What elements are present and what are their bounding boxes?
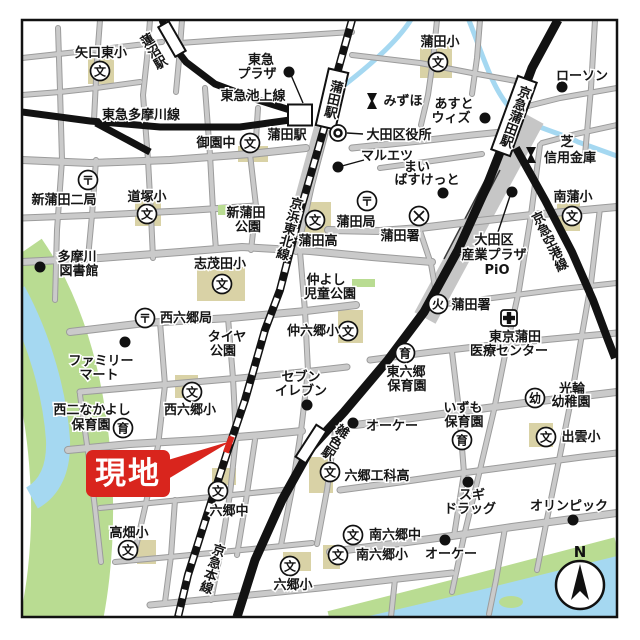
post-icon: 〒 — [136, 309, 155, 328]
map-label: あすと — [434, 97, 473, 112]
school-icon: 文 — [281, 557, 300, 576]
school-icon: 文 — [91, 62, 110, 81]
map-label: ローソン — [556, 69, 608, 84]
map-label: いずも — [443, 400, 482, 416]
map-label: 道塚小 — [127, 189, 166, 205]
school-icon: 文 — [119, 541, 138, 560]
map-label: 六郷中 — [209, 503, 248, 519]
map-label: 東京蒲田 — [489, 329, 541, 345]
map-label: ファミリー — [68, 354, 133, 369]
asuto-with-dot — [480, 113, 491, 124]
school-icon: 文 — [183, 383, 202, 402]
map-label: 西六郷局 — [160, 310, 212, 326]
fire-icon: 火 — [429, 295, 448, 314]
svg-text:育: 育 — [117, 421, 129, 436]
map-label: 保育園 — [386, 378, 426, 394]
svg-text:火: 火 — [432, 298, 445, 312]
school-icon: 文 — [213, 275, 232, 294]
svg-text:育: 育 — [399, 346, 411, 361]
familymart-dot — [120, 337, 131, 348]
map-label: 公園 — [210, 343, 236, 359]
svg-text:文: 文 — [244, 136, 257, 151]
map-label: 六郷小 — [273, 577, 312, 593]
svg-text:文: 文 — [566, 209, 579, 224]
map-label: 志茂田小 — [194, 256, 246, 272]
map-label: オリンピック — [530, 499, 608, 514]
svg-text:文: 文 — [186, 385, 199, 400]
svg-text:文: 文 — [122, 543, 135, 558]
map-label: 東急多摩川線 — [102, 107, 181, 123]
map-label: 東急池上線 — [220, 88, 286, 104]
compass-n-label: N — [574, 543, 587, 561]
map-label: 矢口東小 — [75, 45, 127, 61]
map-label: みずほ — [383, 93, 422, 109]
school-icon: 文 — [429, 53, 448, 72]
svg-text:〒: 〒 — [361, 195, 373, 209]
school-icon: 文 — [339, 322, 358, 341]
svg-text:文: 文 — [309, 213, 322, 228]
map-label: 多摩川 — [57, 249, 96, 265]
svg-text:幼: 幼 — [529, 391, 541, 406]
map-label: 蒲田局 — [336, 214, 375, 230]
tokyu-kamata-station-marker — [288, 105, 312, 126]
map-label: 仲よし — [306, 272, 345, 288]
svg-text:文: 文 — [94, 64, 107, 79]
svg-text:文: 文 — [342, 324, 355, 339]
school-icon: 文 — [321, 463, 340, 482]
map-label: 医療センター — [470, 343, 548, 359]
svg-text:文: 文 — [216, 277, 229, 292]
map-label: 大田区役所 — [366, 127, 431, 143]
svg-text:文: 文 — [332, 548, 345, 563]
sugi-drug-dot — [463, 477, 474, 488]
svg-text:文: 文 — [141, 207, 154, 222]
map-label: 芝 — [560, 134, 573, 150]
map-label: ばすけっと — [394, 173, 459, 188]
school-icon: 文 — [306, 211, 325, 230]
ok-store-dot — [348, 418, 359, 429]
map-label: ウィズ — [431, 110, 470, 126]
map-label: 新蒲田二局 — [31, 192, 96, 208]
pio-dot — [507, 187, 518, 198]
svg-text:育: 育 — [456, 433, 468, 448]
svg-text:文: 文 — [212, 484, 225, 499]
map-label: 保育園 — [443, 414, 483, 430]
tokyu-kamata-station-label: 蒲田駅 — [267, 127, 307, 143]
map-label: 蒲田小 — [420, 34, 459, 50]
svg-text:〒: 〒 — [82, 174, 94, 188]
map-label: 仲六郷小 — [287, 323, 339, 339]
nursery-icon: 育 — [453, 431, 472, 450]
map-label: スギ — [459, 487, 485, 503]
olympic-dot — [568, 515, 579, 526]
location-map: 蒲田駅京急蒲田駅雑色駅蓮沼駅蒲田駅 文文文文文文文文文文文文文文文文〒〒〒火育育… — [0, 0, 640, 640]
pointer-line — [347, 133, 363, 134]
tokyu-plaza-dot — [284, 67, 295, 78]
police-icon — [410, 207, 429, 226]
school-icon: 文 — [138, 205, 157, 224]
map-label: 幼稚園 — [551, 394, 590, 410]
svg-text:文: 文 — [540, 430, 553, 445]
post-icon: 〒 — [358, 192, 377, 211]
maruetsu-dot — [333, 162, 344, 173]
map-label: ドラッグ — [444, 501, 496, 517]
map-label: セブン — [281, 369, 320, 385]
svg-text:文: 文 — [347, 528, 360, 543]
map-label: 図書館 — [59, 263, 98, 279]
svg-text:文: 文 — [324, 465, 337, 480]
nursery-icon: 育 — [396, 344, 415, 363]
map-label: 東六郷 — [386, 364, 425, 380]
school-icon: 文 — [329, 546, 348, 565]
map-label: 西二なかよし — [53, 403, 130, 418]
map-label: 南六郷小 — [356, 547, 408, 563]
school-icon: 文 — [209, 482, 228, 501]
map-label: 大田区 — [474, 232, 513, 248]
svg-text:〒: 〒 — [139, 312, 151, 326]
map-label: 蒲田高 — [298, 233, 337, 249]
map-label: 蒲田署 — [451, 297, 490, 313]
map-label: 西六郷小 — [164, 402, 216, 418]
svg-text:文: 文 — [432, 55, 445, 70]
map-label: 産業プラザ — [461, 247, 526, 263]
map-label: 蒲田署 — [380, 228, 419, 244]
map-label: 新蒲田 — [226, 205, 265, 221]
post-icon: 〒 — [79, 171, 98, 190]
map-label: 東急 — [248, 52, 274, 68]
map-label: 六郷工科高 — [344, 468, 409, 484]
map-label: 出雲小 — [561, 429, 600, 445]
map-label: イレブン — [275, 383, 327, 399]
map-label: 公園 — [235, 219, 261, 235]
mybasket-dot — [438, 188, 449, 199]
map-label: オーケー — [366, 419, 418, 434]
map-label: マート — [79, 368, 118, 383]
callout-label: 現地 — [95, 456, 161, 492]
school-icon: 文 — [241, 134, 260, 153]
kindergarten-icon: 幼 — [526, 389, 545, 408]
ok-store-dot — [440, 535, 451, 546]
map-label: オーケー — [425, 547, 477, 562]
hospital-icon — [501, 310, 517, 326]
map-label: 信用金庫 — [544, 150, 596, 166]
map-label: 南六郷中 — [369, 527, 421, 543]
map-label: 御園中 — [195, 135, 235, 151]
map-label: タイヤ — [208, 330, 247, 345]
map-label: 南蒲小 — [553, 189, 592, 205]
library-dot — [35, 262, 46, 273]
gov-icon — [330, 125, 346, 141]
map-label: プラザ — [237, 67, 276, 82]
school-icon: 文 — [537, 428, 556, 447]
river-islet — [499, 596, 523, 608]
map-label: 高畑小 — [109, 525, 148, 541]
map-label: PiO — [484, 263, 509, 278]
seveneleven-dot — [302, 400, 313, 411]
school-icon: 文 — [563, 207, 582, 226]
map-label: 児童公園 — [303, 286, 356, 302]
svg-text:文: 文 — [284, 559, 297, 574]
map-label: 保育園 — [70, 417, 110, 433]
nursery-icon: 育 — [114, 419, 133, 438]
school-icon: 文 — [344, 526, 363, 545]
